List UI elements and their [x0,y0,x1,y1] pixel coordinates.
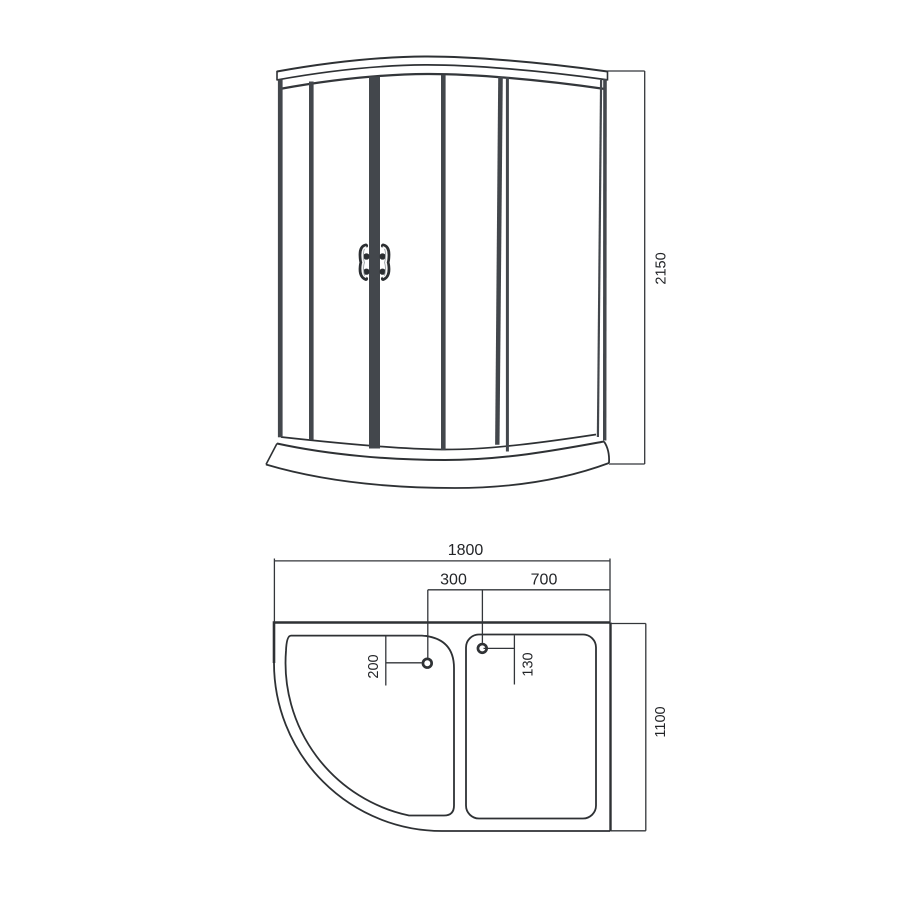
svg-text:1800: 1800 [448,542,484,559]
svg-text:700: 700 [531,571,558,588]
svg-text:130: 130 [520,652,536,676]
svg-text:200: 200 [366,654,382,678]
svg-text:2150: 2150 [653,252,669,284]
svg-text:300: 300 [440,571,467,588]
svg-text:1100: 1100 [653,706,669,737]
